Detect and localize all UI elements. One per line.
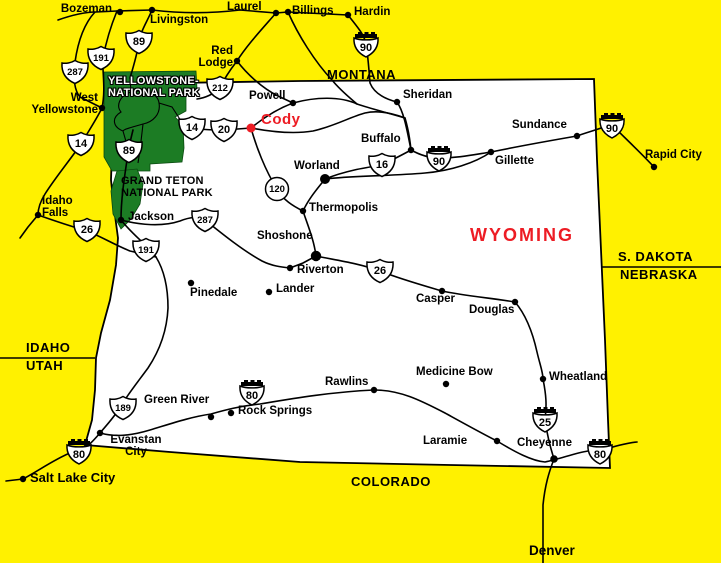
city-dot-powell bbox=[290, 100, 296, 106]
city-dot-pinedale bbox=[188, 280, 194, 286]
route-number: 89 bbox=[123, 145, 135, 157]
city-dot-sheridan bbox=[394, 99, 400, 105]
route-16-shield: 16 bbox=[367, 152, 397, 178]
city-dot-cody bbox=[247, 124, 256, 133]
route-number: 120 bbox=[269, 184, 285, 195]
route-number: 16 bbox=[376, 159, 388, 171]
city-dot-bozeman bbox=[117, 9, 123, 15]
city-dot-rapid-city bbox=[651, 164, 657, 170]
route-14-shield: 14 bbox=[66, 131, 96, 157]
city-dot-sundance bbox=[574, 133, 580, 139]
route-number: 26 bbox=[81, 224, 93, 236]
route-number: 191 bbox=[93, 53, 109, 64]
route-number: 90 bbox=[433, 156, 445, 168]
city-dot-worland bbox=[320, 174, 330, 184]
city-dot-west-yellowstone bbox=[99, 105, 105, 111]
route-14-shield: 14 bbox=[177, 115, 207, 141]
route-number: 90 bbox=[606, 123, 618, 135]
route-191-shield: 191 bbox=[86, 45, 116, 71]
route-number: 26 bbox=[374, 265, 386, 277]
city-dot-medicine-bow bbox=[443, 381, 449, 387]
city-dot-salt-lake-city bbox=[20, 476, 26, 482]
interstate-90-shield: 90 bbox=[350, 30, 382, 58]
city-dot-riverton bbox=[287, 265, 293, 271]
route-number: 287 bbox=[67, 67, 83, 78]
city-dot-gillette bbox=[488, 149, 494, 155]
interstate-80-shield: 80 bbox=[63, 437, 95, 465]
interstate-80-shield: 80 bbox=[236, 378, 268, 406]
city-dot-thermopolis bbox=[300, 208, 306, 214]
route-number: 80 bbox=[594, 449, 606, 461]
city-dot-red-lodge bbox=[234, 58, 240, 64]
city-dot-billings bbox=[285, 9, 291, 15]
map-canvas bbox=[0, 0, 721, 563]
route-number: 90 bbox=[360, 42, 372, 54]
city-dot-shoshone bbox=[311, 251, 321, 261]
city-dot-livingston bbox=[149, 7, 155, 13]
city-dot-laurel bbox=[273, 10, 279, 16]
city-dot-laramie bbox=[494, 438, 500, 444]
city-dot-green-river bbox=[208, 414, 214, 420]
interstate-80-shield: 80 bbox=[584, 437, 616, 465]
city-dot-buffalo bbox=[408, 147, 414, 153]
city-dot-cheyenne bbox=[550, 455, 558, 463]
city-dot-idaho-falls bbox=[35, 212, 41, 218]
city-dot-evanstan-city bbox=[97, 430, 103, 436]
route-287-shield: 287 bbox=[190, 207, 220, 233]
route-number: 80 bbox=[246, 390, 258, 402]
route-26-shield: 26 bbox=[72, 217, 102, 243]
route-89-shield: 89 bbox=[124, 29, 154, 55]
city-dot-wheatland bbox=[540, 376, 546, 382]
wyoming-highway-map: MONTANAWYOMINGS. DAKOTANEBRASKAIDAHOUTAH… bbox=[0, 0, 721, 563]
route-212-shield: 212 bbox=[205, 75, 235, 101]
route-189-shield: 189 bbox=[108, 395, 138, 421]
route-number: 191 bbox=[138, 245, 154, 256]
city-dot-casper bbox=[439, 288, 445, 294]
route-191-shield: 191 bbox=[131, 237, 161, 263]
route-287-shield: 287 bbox=[60, 59, 90, 85]
city-dot-douglas bbox=[512, 299, 518, 305]
city-dot-lander bbox=[266, 289, 272, 295]
route-number: 287 bbox=[197, 215, 213, 226]
city-dot-rawlins bbox=[371, 387, 377, 393]
route-number: 89 bbox=[133, 36, 145, 48]
route-number: 80 bbox=[73, 449, 85, 461]
route-26-shield: 26 bbox=[365, 258, 395, 284]
route-number: 212 bbox=[212, 83, 228, 94]
route-number: 189 bbox=[115, 403, 131, 414]
route-number: 14 bbox=[75, 138, 87, 150]
route-number: 25 bbox=[539, 417, 551, 429]
interstate-90-shield: 90 bbox=[596, 111, 628, 139]
city-dot-jackson bbox=[118, 217, 124, 223]
interstate-25-shield: 25 bbox=[529, 405, 561, 433]
city-dot-rock-springs bbox=[228, 410, 234, 416]
route-20-shield: 20 bbox=[209, 117, 239, 143]
route-number: 14 bbox=[186, 122, 198, 134]
route-89-shield: 89 bbox=[114, 138, 144, 164]
city-dot-hardin bbox=[345, 12, 351, 18]
route-120-shield: 120 bbox=[262, 176, 292, 202]
interstate-90-shield: 90 bbox=[423, 144, 455, 172]
route-number: 20 bbox=[218, 124, 230, 136]
